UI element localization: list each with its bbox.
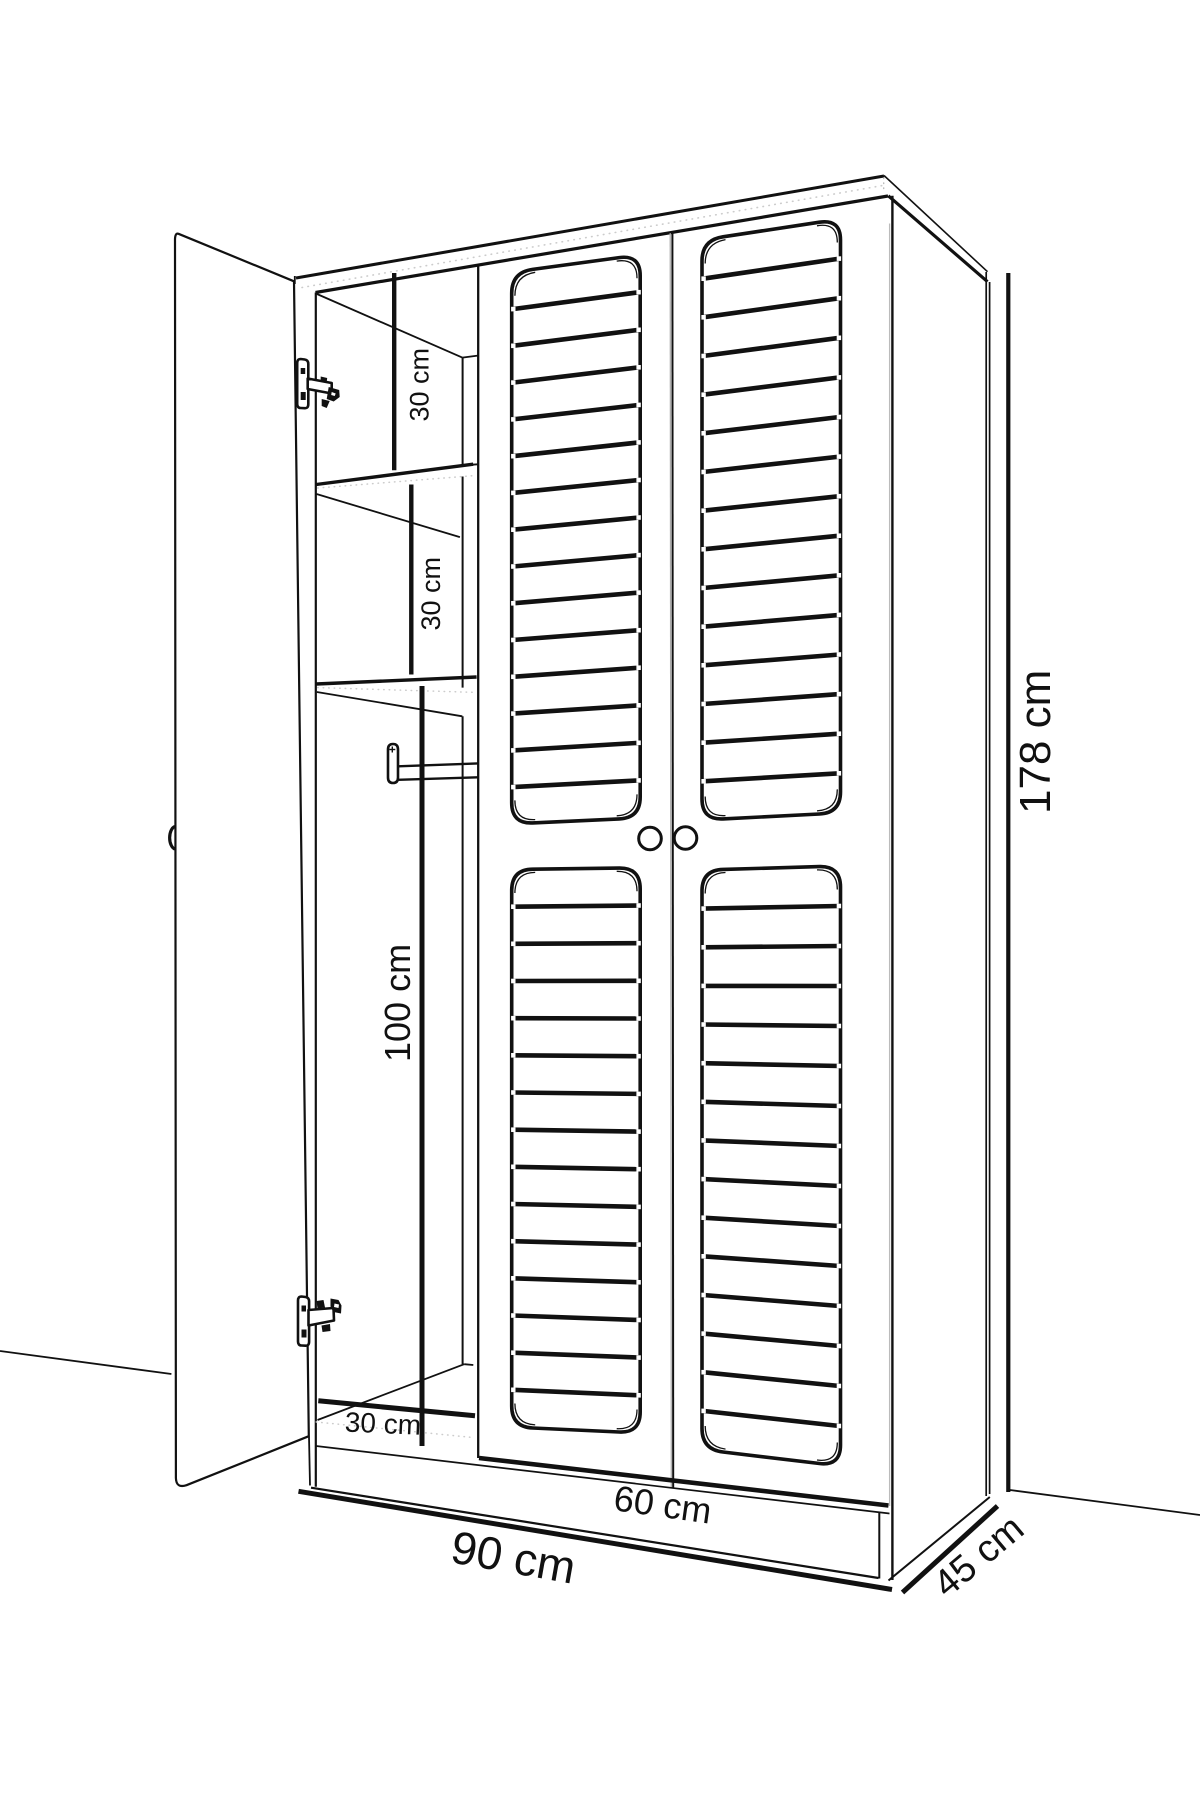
- svg-text:30 cm: 30 cm: [344, 1407, 422, 1441]
- svg-text:100 cm: 100 cm: [377, 944, 418, 1062]
- svg-text:30 cm: 30 cm: [405, 348, 435, 422]
- svg-text:178 cm: 178 cm: [1011, 670, 1060, 814]
- svg-text:30 cm: 30 cm: [416, 557, 446, 631]
